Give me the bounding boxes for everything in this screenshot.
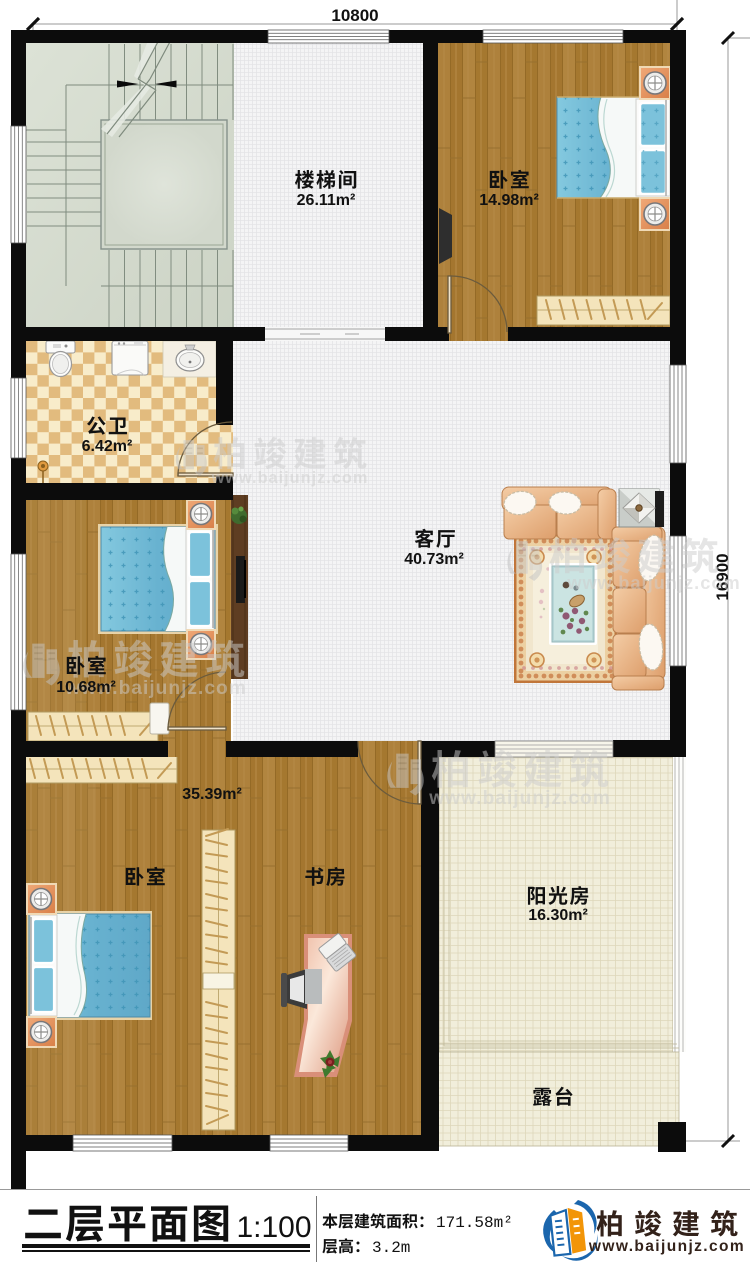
svg-text:www.baijunjz.com: www.baijunjz.com (428, 788, 611, 809)
svg-text:26.11m²: 26.11m² (297, 192, 356, 209)
svg-text:www.baijunjz.com: www.baijunjz.com (211, 469, 369, 487)
svg-text:1:100: 1:100 (236, 1211, 311, 1244)
svg-text:35.39m²: 35.39m² (182, 786, 242, 803)
svg-text:6.42m²: 6.42m² (82, 438, 133, 455)
svg-text:16.30m²: 16.30m² (528, 907, 588, 924)
svg-text:10.68m²: 10.68m² (56, 679, 116, 696)
svg-text:www.baijunjz.com: www.baijunjz.com (566, 572, 740, 593)
svg-text:14.98m²: 14.98m² (479, 192, 539, 209)
svg-text:3.2m: 3.2m (372, 1239, 410, 1257)
svg-text:www.baijunjz.com: www.baijunjz.com (588, 1238, 745, 1255)
svg-text:40.73m²: 40.73m² (404, 551, 464, 568)
svg-text:10800: 10800 (331, 6, 378, 25)
svg-text:171.58m²: 171.58m² (436, 1214, 513, 1232)
